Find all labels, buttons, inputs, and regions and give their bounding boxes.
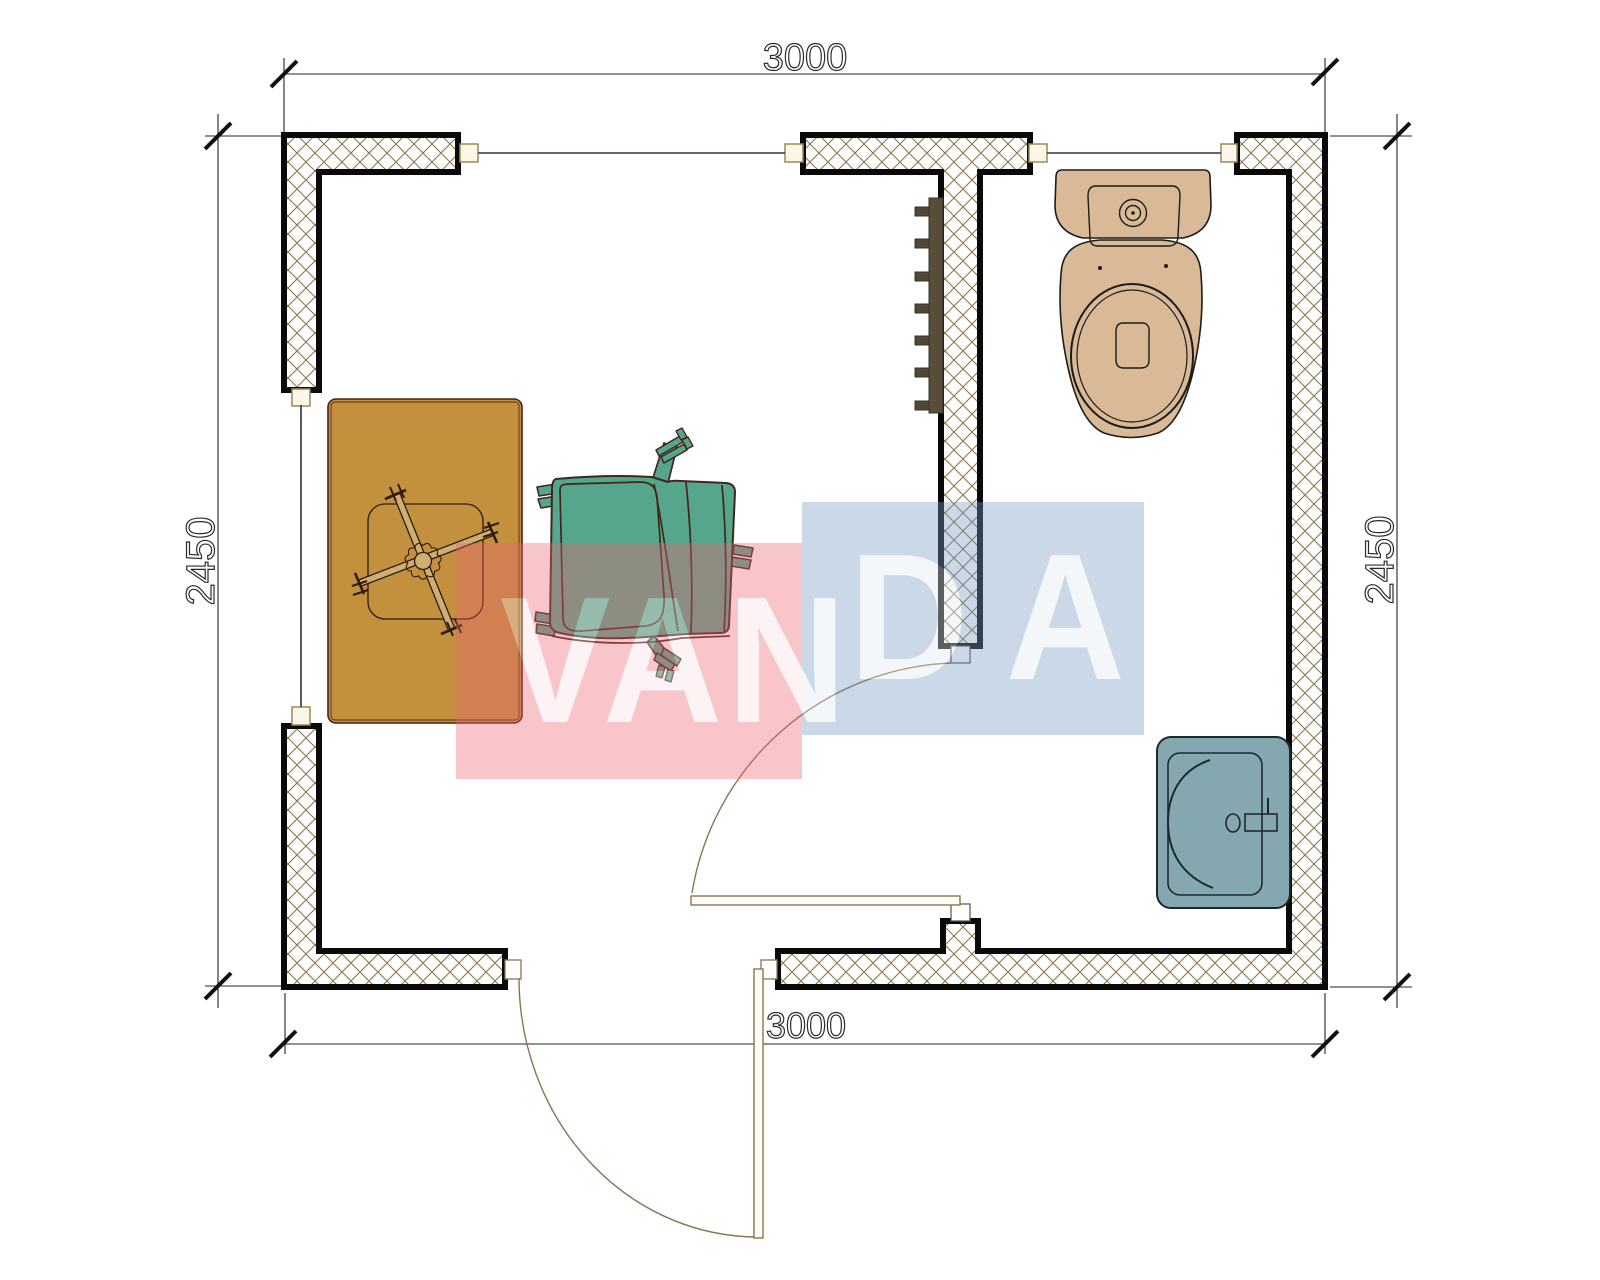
svg-text:3000: 3000: [766, 1005, 846, 1046]
svg-text:2450: 2450: [1358, 516, 1402, 605]
svg-text:VAN: VAN: [500, 559, 851, 761]
svg-text:DA: DA: [849, 516, 1162, 718]
svg-text:3000: 3000: [763, 37, 848, 79]
svg-text:2450: 2450: [179, 517, 223, 606]
